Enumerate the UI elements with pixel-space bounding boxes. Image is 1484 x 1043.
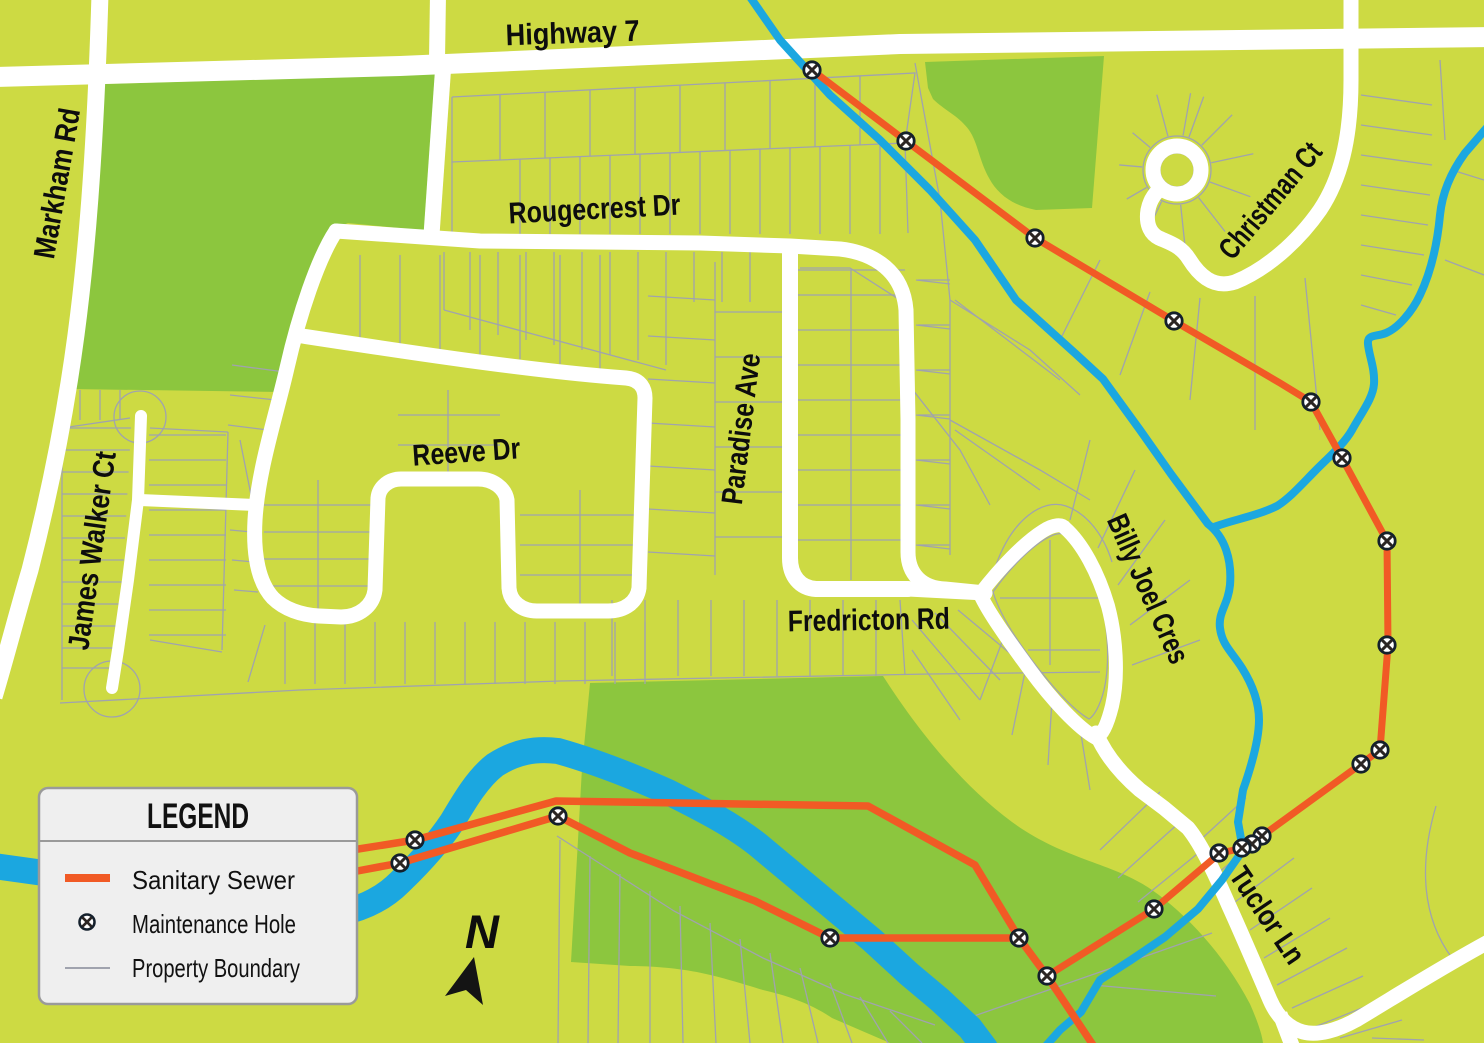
svg-text:Fredricton Rd: Fredricton Rd — [788, 603, 951, 639]
svg-text:Property Boundary: Property Boundary — [132, 953, 300, 983]
svg-text:LEGEND: LEGEND — [147, 797, 249, 836]
svg-text:Sanitary Sewer: Sanitary Sewer — [132, 865, 295, 895]
svg-text:N: N — [465, 905, 500, 958]
svg-text:Maintenance Hole: Maintenance Hole — [132, 909, 296, 939]
svg-text:Highway 7: Highway 7 — [505, 15, 640, 53]
